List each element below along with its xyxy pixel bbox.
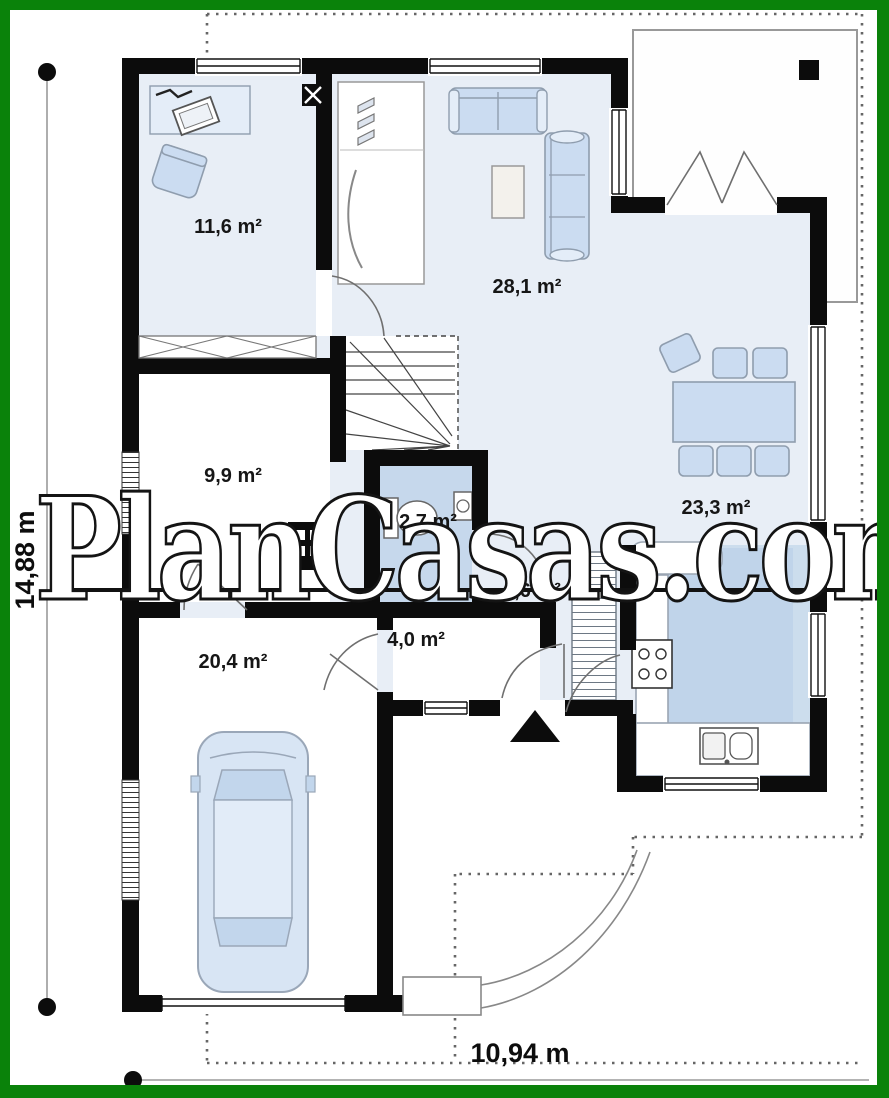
car-icon (191, 732, 315, 992)
wall-vent-garage (122, 780, 139, 900)
dining-table (673, 382, 795, 442)
window-kitchen-south (663, 774, 760, 794)
sofa-three-seat (545, 131, 589, 261)
chimney-icon (302, 84, 324, 106)
dimension-dot (38, 998, 56, 1016)
dimension-dot (124, 1071, 142, 1089)
sofa-two-seat (449, 88, 547, 134)
terrace-column-icon (799, 60, 819, 80)
stove-icon (632, 640, 672, 688)
window-living (428, 56, 542, 76)
kitchen-sink-icon (700, 728, 758, 765)
label-garage: 20,4 m² (199, 651, 268, 673)
window-office (195, 56, 302, 76)
door-opening-terrace (665, 195, 777, 215)
chair (753, 348, 787, 378)
garage-door (162, 993, 345, 1014)
coffee-table (492, 166, 524, 218)
floor-stair (346, 336, 458, 450)
floor-plan-page: 11,6 m² 28,1 m² 9,9 m² 2,7 m² 23,3 m² 4,… (0, 0, 889, 1098)
watermark-text: PlanCasas.com (10, 472, 764, 628)
chair (713, 348, 747, 378)
window-vestibule (423, 698, 469, 718)
label-office: 11,6 m² (194, 216, 262, 238)
label-living-room: 28,1 m² (493, 276, 562, 298)
coat-hooks-icon (358, 98, 374, 145)
office-closet (139, 336, 316, 358)
wardrobe (338, 82, 424, 284)
dining-furniture (658, 332, 795, 476)
width-dimension-label: 10,94 m (470, 1038, 569, 1068)
dimension-dot (38, 63, 56, 81)
door-opening-office (316, 270, 332, 336)
window-living-east (609, 108, 630, 196)
